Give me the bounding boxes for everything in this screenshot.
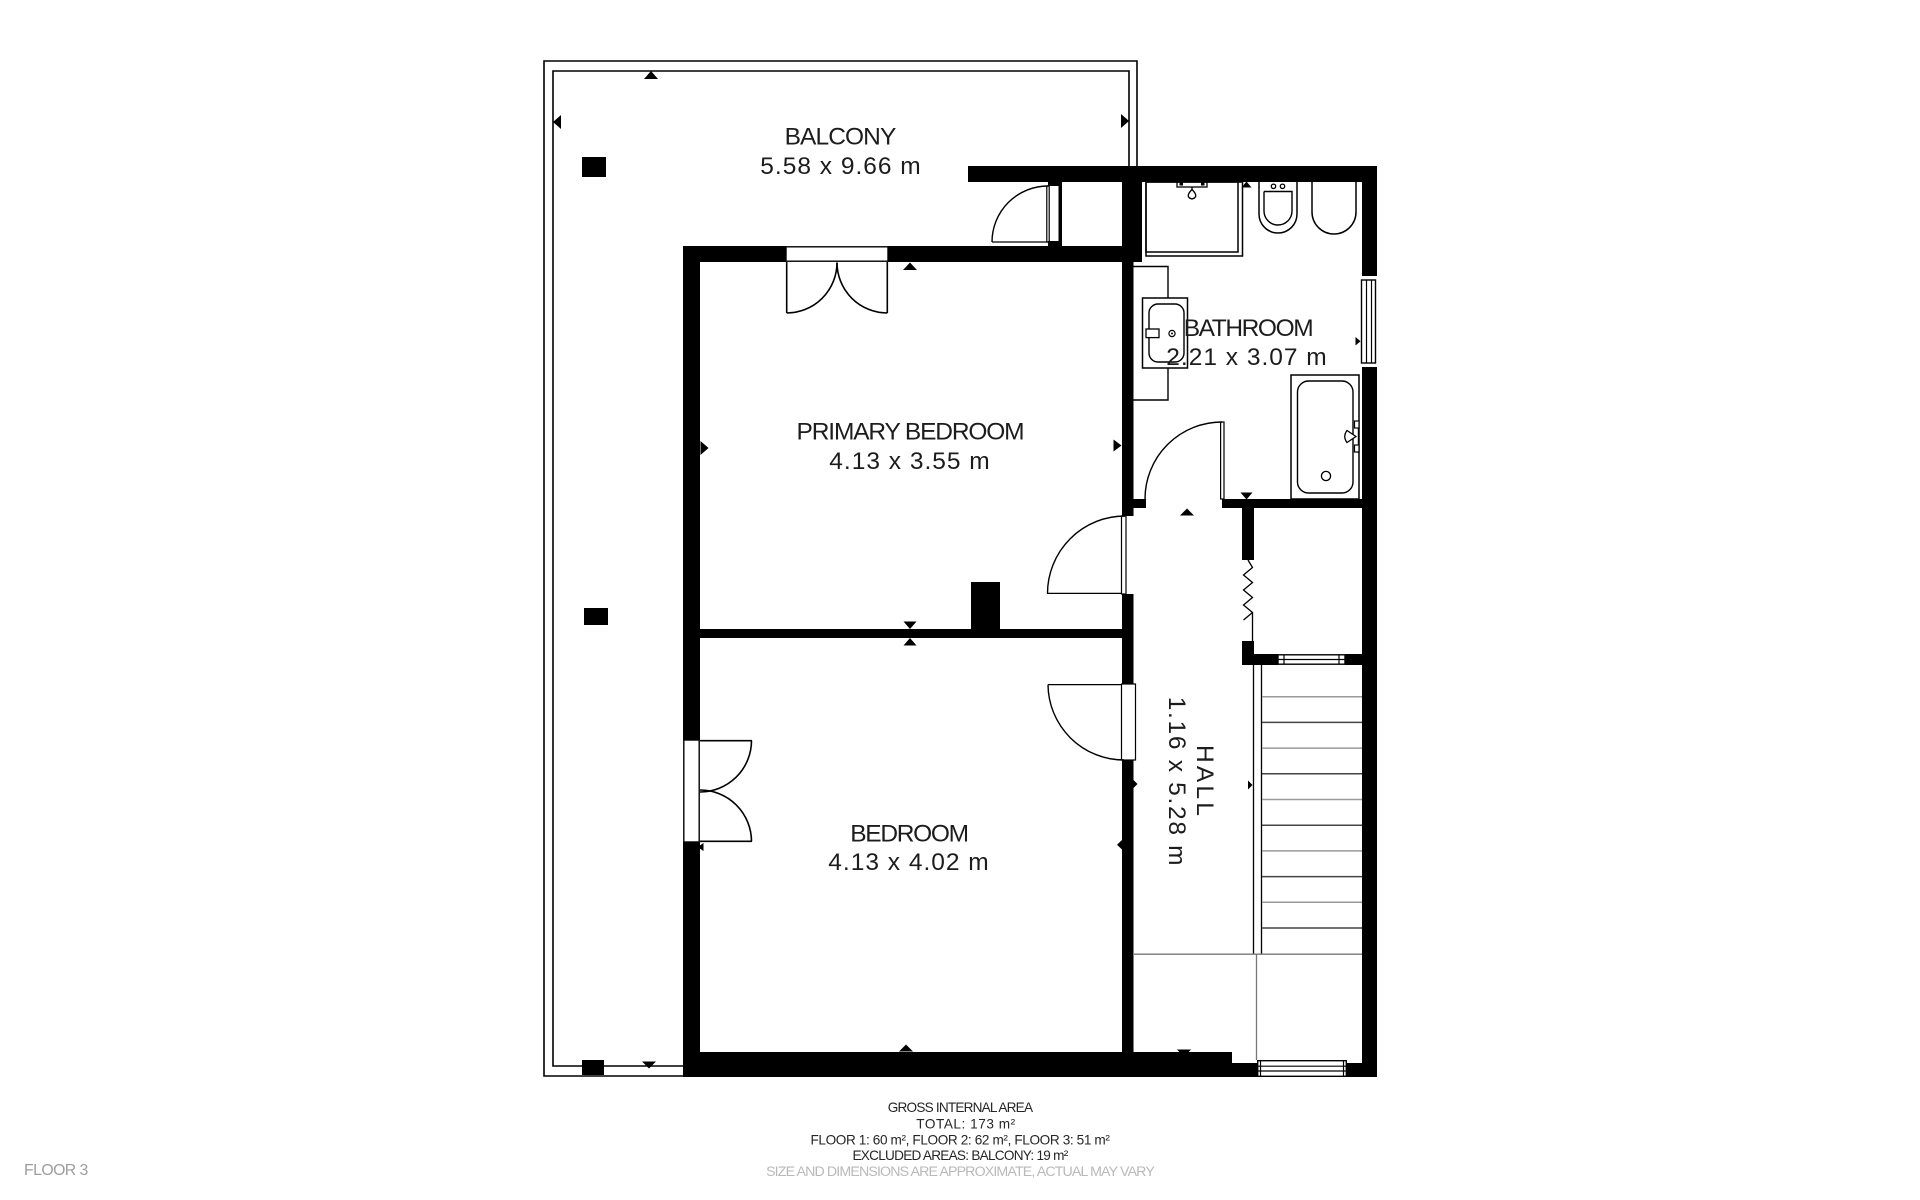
svg-text:FLOOR 3: FLOOR 3 [24,1162,89,1179]
svg-text:PRIMARY BEDROOM: PRIMARY BEDROOM [797,419,1024,446]
svg-text:2.21 x 3.07 m: 2.21 x 3.07 m [1166,344,1327,371]
svg-text:SIZE AND DIMENSIONS ARE APPROX: SIZE AND DIMENSIONS ARE APPROXIMATE, ACT… [766,1164,1155,1180]
svg-text:1.16 x 5.28 m: 1.16 x 5.28 m [1163,697,1190,868]
svg-text:FLOOR 1: 60 m², FLOOR 2: 62 m²: FLOOR 1: 60 m², FLOOR 2: 62 m², FLOOR 3:… [810,1133,1110,1148]
svg-text:BATHROOM: BATHROOM [1184,315,1313,342]
svg-text:BEDROOM: BEDROOM [850,821,968,848]
svg-text:TOTAL: 173 m²: TOTAL: 173 m² [916,1117,1015,1132]
svg-text:4.13 x 4.02 m: 4.13 x 4.02 m [828,849,989,876]
svg-text:EXCLUDED AREAS: BALCONY: 19 m²: EXCLUDED AREAS: BALCONY: 19 m² [852,1148,1068,1163]
svg-text:HALL: HALL [1191,745,1218,819]
svg-text:5.58 x 9.66 m: 5.58 x 9.66 m [760,153,921,180]
svg-text:GROSS INTERNAL AREA: GROSS INTERNAL AREA [888,1100,1034,1115]
svg-text:4.13 x 3.55 m: 4.13 x 3.55 m [829,448,990,475]
svg-text:BALCONY: BALCONY [785,124,896,151]
